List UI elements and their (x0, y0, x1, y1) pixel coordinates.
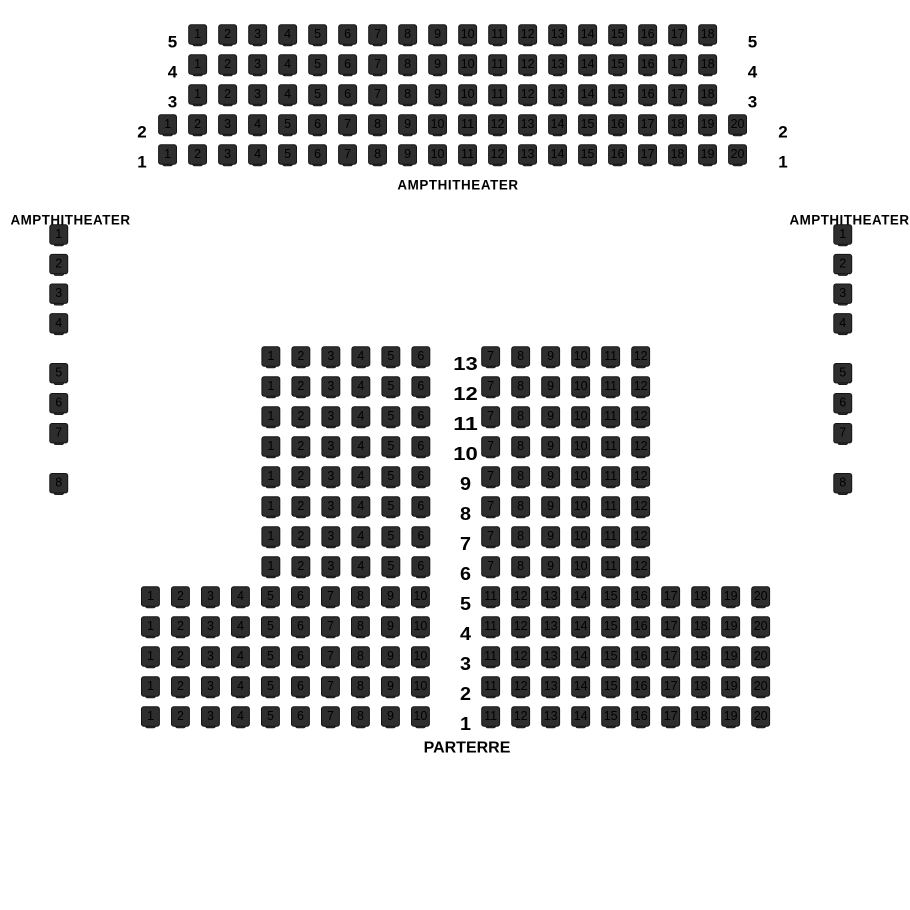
svg-text:4: 4 (237, 709, 244, 723)
svg-text:3: 3 (460, 654, 471, 674)
svg-text:4: 4 (237, 619, 244, 633)
svg-text:8: 8 (404, 57, 411, 71)
svg-text:4: 4 (839, 316, 846, 330)
svg-text:10: 10 (574, 559, 588, 573)
svg-text:19: 19 (701, 117, 715, 131)
svg-text:19: 19 (701, 147, 715, 161)
svg-text:9: 9 (387, 709, 394, 723)
svg-text:17: 17 (671, 57, 685, 71)
svg-text:2: 2 (297, 469, 304, 483)
svg-text:9: 9 (460, 474, 471, 494)
svg-text:4: 4 (284, 57, 291, 71)
svg-text:3: 3 (224, 117, 231, 131)
svg-text:5: 5 (267, 619, 274, 633)
svg-text:12: 12 (634, 529, 648, 543)
svg-text:5: 5 (314, 87, 321, 101)
svg-text:7: 7 (374, 57, 381, 71)
svg-text:8: 8 (517, 409, 524, 423)
svg-text:4: 4 (357, 439, 364, 453)
svg-text:1: 1 (267, 529, 274, 543)
svg-text:9: 9 (434, 27, 441, 41)
svg-text:6: 6 (839, 396, 846, 410)
svg-text:12: 12 (521, 27, 535, 41)
svg-text:7: 7 (374, 27, 381, 41)
svg-text:2: 2 (177, 709, 184, 723)
svg-text:4: 4 (284, 87, 291, 101)
svg-text:17: 17 (671, 27, 685, 41)
svg-text:10: 10 (574, 529, 588, 543)
svg-text:12: 12 (634, 439, 648, 453)
svg-text:1: 1 (55, 227, 62, 241)
svg-text:12: 12 (634, 379, 648, 393)
svg-text:AMPTHITHEATER: AMPTHITHEATER (10, 213, 130, 228)
svg-text:3: 3 (254, 57, 261, 71)
svg-text:6: 6 (417, 349, 424, 363)
svg-text:17: 17 (664, 679, 678, 693)
svg-text:5: 5 (387, 529, 394, 543)
svg-text:1: 1 (460, 714, 471, 734)
svg-text:1: 1 (267, 499, 274, 513)
svg-text:16: 16 (634, 589, 648, 603)
svg-text:5: 5 (168, 33, 177, 52)
svg-text:10: 10 (461, 87, 475, 101)
svg-text:9: 9 (547, 409, 554, 423)
svg-text:12: 12 (521, 57, 535, 71)
svg-text:8: 8 (357, 649, 364, 663)
svg-text:7: 7 (487, 469, 494, 483)
svg-text:13: 13 (521, 117, 535, 131)
svg-text:5: 5 (314, 27, 321, 41)
svg-text:14: 14 (574, 619, 588, 633)
svg-text:1: 1 (267, 349, 274, 363)
svg-text:8: 8 (517, 529, 524, 543)
svg-text:18: 18 (694, 589, 708, 603)
svg-text:3: 3 (748, 93, 757, 112)
svg-text:8: 8 (460, 504, 471, 524)
svg-text:18: 18 (701, 27, 715, 41)
svg-text:13: 13 (544, 679, 558, 693)
svg-text:1: 1 (194, 27, 201, 41)
svg-text:16: 16 (641, 57, 655, 71)
svg-text:14: 14 (551, 117, 565, 131)
svg-text:4: 4 (357, 349, 364, 363)
svg-text:15: 15 (604, 649, 618, 663)
svg-text:13: 13 (551, 57, 565, 71)
svg-text:13: 13 (453, 354, 478, 374)
svg-text:12: 12 (634, 559, 648, 573)
svg-text:13: 13 (544, 649, 558, 663)
svg-text:1: 1 (267, 439, 274, 453)
svg-text:11: 11 (484, 649, 497, 663)
svg-text:11: 11 (491, 27, 504, 41)
svg-text:10: 10 (413, 649, 427, 663)
svg-text:4: 4 (55, 316, 62, 330)
svg-text:7: 7 (487, 439, 494, 453)
svg-text:1: 1 (194, 87, 201, 101)
svg-text:4: 4 (254, 117, 261, 131)
svg-text:5: 5 (267, 709, 274, 723)
svg-text:3: 3 (207, 619, 214, 633)
svg-text:4: 4 (254, 147, 261, 161)
svg-text:1: 1 (267, 559, 274, 573)
svg-text:10: 10 (574, 439, 588, 453)
svg-text:3: 3 (839, 286, 846, 300)
svg-text:7: 7 (487, 529, 494, 543)
svg-text:12: 12 (521, 87, 535, 101)
svg-text:18: 18 (701, 57, 715, 71)
svg-text:12: 12 (634, 499, 648, 513)
svg-text:15: 15 (604, 679, 618, 693)
svg-text:11: 11 (604, 439, 617, 453)
svg-text:19: 19 (724, 679, 738, 693)
svg-text:10: 10 (453, 444, 478, 464)
svg-text:1: 1 (164, 117, 171, 131)
svg-text:20: 20 (754, 619, 768, 633)
svg-text:7: 7 (327, 649, 334, 663)
svg-text:11: 11 (604, 499, 617, 513)
svg-text:4: 4 (460, 624, 471, 644)
svg-text:1: 1 (147, 589, 154, 603)
svg-text:6: 6 (297, 709, 304, 723)
svg-text:15: 15 (611, 57, 625, 71)
svg-text:1: 1 (147, 619, 154, 633)
svg-text:16: 16 (634, 649, 648, 663)
svg-text:6: 6 (417, 529, 424, 543)
svg-text:12: 12 (491, 117, 505, 131)
svg-text:13: 13 (551, 87, 565, 101)
svg-text:9: 9 (547, 469, 554, 483)
svg-text:8: 8 (357, 589, 364, 603)
svg-text:8: 8 (517, 439, 524, 453)
svg-text:4: 4 (357, 499, 364, 513)
svg-text:14: 14 (581, 27, 595, 41)
svg-text:5: 5 (267, 589, 274, 603)
svg-text:5: 5 (387, 349, 394, 363)
svg-text:8: 8 (517, 349, 524, 363)
svg-text:4: 4 (237, 589, 244, 603)
svg-text:6: 6 (460, 564, 471, 584)
svg-text:1: 1 (147, 649, 154, 663)
svg-text:11: 11 (491, 57, 504, 71)
svg-text:9: 9 (434, 87, 441, 101)
svg-text:1: 1 (778, 153, 787, 172)
svg-text:8: 8 (374, 117, 381, 131)
svg-text:4: 4 (357, 559, 364, 573)
svg-text:5: 5 (387, 379, 394, 393)
svg-text:6: 6 (417, 439, 424, 453)
svg-text:11: 11 (604, 379, 617, 393)
svg-text:5: 5 (284, 147, 291, 161)
svg-text:14: 14 (574, 709, 588, 723)
svg-text:2: 2 (297, 409, 304, 423)
svg-text:17: 17 (664, 709, 678, 723)
svg-text:17: 17 (671, 87, 685, 101)
svg-text:15: 15 (604, 589, 618, 603)
svg-text:10: 10 (574, 409, 588, 423)
svg-text:10: 10 (574, 349, 588, 363)
svg-text:5: 5 (284, 117, 291, 131)
svg-text:14: 14 (574, 649, 588, 663)
svg-text:11: 11 (461, 117, 474, 131)
svg-text:9: 9 (547, 499, 554, 513)
svg-text:1: 1 (267, 379, 274, 393)
svg-text:10: 10 (413, 679, 427, 693)
svg-text:5: 5 (748, 33, 757, 52)
svg-text:2: 2 (194, 117, 201, 131)
svg-text:3: 3 (55, 286, 62, 300)
svg-text:10: 10 (574, 499, 588, 513)
svg-text:10: 10 (461, 27, 475, 41)
svg-text:18: 18 (694, 619, 708, 633)
svg-text:8: 8 (404, 27, 411, 41)
svg-text:12: 12 (514, 589, 528, 603)
svg-text:17: 17 (664, 589, 678, 603)
svg-text:8: 8 (839, 476, 846, 490)
svg-text:12: 12 (634, 349, 648, 363)
svg-text:2: 2 (460, 684, 471, 704)
svg-text:4: 4 (284, 27, 291, 41)
svg-text:10: 10 (574, 379, 588, 393)
svg-text:1: 1 (267, 409, 274, 423)
svg-text:2: 2 (224, 87, 231, 101)
svg-text:3: 3 (224, 147, 231, 161)
svg-text:5: 5 (267, 679, 274, 693)
svg-text:6: 6 (417, 559, 424, 573)
svg-text:2: 2 (297, 379, 304, 393)
svg-text:15: 15 (611, 87, 625, 101)
svg-text:5: 5 (55, 366, 62, 380)
svg-text:20: 20 (731, 147, 745, 161)
svg-text:20: 20 (731, 117, 745, 131)
svg-text:4: 4 (237, 679, 244, 693)
svg-text:19: 19 (724, 649, 738, 663)
svg-text:2: 2 (297, 349, 304, 363)
svg-text:2: 2 (778, 123, 787, 142)
svg-text:6: 6 (297, 589, 304, 603)
svg-text:6: 6 (417, 409, 424, 423)
svg-text:10: 10 (413, 709, 427, 723)
svg-text:20: 20 (754, 679, 768, 693)
svg-text:11: 11 (484, 679, 497, 693)
svg-text:8: 8 (517, 559, 524, 573)
svg-text:14: 14 (574, 589, 588, 603)
svg-text:11: 11 (484, 709, 497, 723)
svg-text:3: 3 (327, 469, 334, 483)
svg-text:18: 18 (701, 87, 715, 101)
svg-text:17: 17 (664, 619, 678, 633)
svg-text:3: 3 (327, 349, 334, 363)
svg-text:6: 6 (314, 147, 321, 161)
svg-text:16: 16 (611, 117, 625, 131)
svg-text:9: 9 (387, 679, 394, 693)
svg-text:7: 7 (344, 147, 351, 161)
svg-text:7: 7 (374, 87, 381, 101)
svg-text:12: 12 (514, 679, 528, 693)
svg-text:12: 12 (514, 619, 528, 633)
svg-text:5: 5 (267, 649, 274, 663)
svg-text:19: 19 (724, 619, 738, 633)
svg-text:2: 2 (839, 257, 846, 271)
svg-text:2: 2 (297, 439, 304, 453)
svg-text:7: 7 (55, 426, 62, 440)
svg-text:6: 6 (297, 649, 304, 663)
svg-text:6: 6 (55, 396, 62, 410)
svg-text:2: 2 (177, 589, 184, 603)
svg-text:10: 10 (431, 147, 445, 161)
svg-text:17: 17 (641, 117, 655, 131)
svg-text:12: 12 (514, 709, 528, 723)
svg-text:1: 1 (267, 469, 274, 483)
svg-text:15: 15 (581, 117, 595, 131)
svg-text:3: 3 (254, 87, 261, 101)
svg-text:16: 16 (634, 679, 648, 693)
svg-text:20: 20 (754, 589, 768, 603)
svg-text:4: 4 (357, 469, 364, 483)
svg-text:18: 18 (694, 709, 708, 723)
svg-text:5: 5 (839, 366, 846, 380)
svg-text:16: 16 (634, 619, 648, 633)
svg-text:16: 16 (634, 709, 648, 723)
svg-text:13: 13 (544, 619, 558, 633)
svg-text:4: 4 (168, 63, 178, 82)
svg-text:9: 9 (387, 649, 394, 663)
svg-text:3: 3 (327, 499, 334, 513)
svg-text:9: 9 (404, 147, 411, 161)
svg-text:11: 11 (604, 469, 617, 483)
svg-text:13: 13 (544, 709, 558, 723)
svg-text:3: 3 (327, 559, 334, 573)
svg-text:3: 3 (327, 529, 334, 543)
svg-text:2: 2 (297, 559, 304, 573)
svg-text:1: 1 (194, 57, 201, 71)
svg-text:PARTERRE: PARTERRE (424, 740, 511, 757)
svg-text:14: 14 (551, 147, 565, 161)
svg-text:3: 3 (207, 709, 214, 723)
svg-text:7: 7 (327, 709, 334, 723)
svg-text:15: 15 (604, 709, 618, 723)
svg-text:18: 18 (671, 147, 685, 161)
svg-text:9: 9 (434, 57, 441, 71)
svg-text:11: 11 (453, 414, 478, 434)
svg-text:18: 18 (671, 117, 685, 131)
svg-text:12: 12 (491, 147, 505, 161)
svg-text:15: 15 (604, 619, 618, 633)
svg-text:13: 13 (544, 589, 558, 603)
svg-text:11: 11 (604, 349, 617, 363)
svg-text:11: 11 (491, 87, 504, 101)
svg-text:5: 5 (387, 439, 394, 453)
svg-text:8: 8 (357, 679, 364, 693)
svg-text:6: 6 (314, 117, 321, 131)
svg-text:10: 10 (574, 469, 588, 483)
svg-text:7: 7 (327, 619, 334, 633)
svg-text:14: 14 (581, 57, 595, 71)
svg-text:13: 13 (521, 147, 535, 161)
svg-text:9: 9 (547, 439, 554, 453)
svg-text:1: 1 (839, 227, 846, 241)
svg-text:11: 11 (604, 409, 617, 423)
svg-text:3: 3 (327, 379, 334, 393)
svg-text:3: 3 (327, 409, 334, 423)
svg-text:6: 6 (344, 87, 351, 101)
svg-text:12: 12 (634, 469, 648, 483)
svg-text:11: 11 (461, 147, 474, 161)
svg-text:5: 5 (387, 559, 394, 573)
svg-text:2: 2 (177, 619, 184, 633)
svg-text:3: 3 (207, 679, 214, 693)
svg-text:2: 2 (177, 649, 184, 663)
svg-text:2: 2 (224, 27, 231, 41)
svg-text:17: 17 (641, 147, 655, 161)
svg-text:2: 2 (55, 257, 62, 271)
svg-text:5: 5 (460, 594, 471, 614)
svg-text:13: 13 (551, 27, 565, 41)
svg-text:7: 7 (839, 426, 846, 440)
svg-text:20: 20 (754, 649, 768, 663)
svg-text:3: 3 (207, 589, 214, 603)
svg-text:11: 11 (604, 529, 617, 543)
svg-text:6: 6 (344, 57, 351, 71)
svg-text:7: 7 (487, 499, 494, 513)
svg-text:7: 7 (460, 534, 471, 554)
svg-text:7: 7 (487, 409, 494, 423)
svg-text:3: 3 (207, 649, 214, 663)
svg-text:19: 19 (724, 709, 738, 723)
svg-text:4: 4 (357, 379, 364, 393)
svg-text:AMPTHITHEATER: AMPTHITHEATER (397, 178, 518, 193)
svg-text:15: 15 (611, 27, 625, 41)
svg-text:2: 2 (297, 499, 304, 513)
svg-text:9: 9 (547, 559, 554, 573)
svg-text:12: 12 (634, 409, 648, 423)
svg-text:1: 1 (164, 147, 171, 161)
svg-text:1: 1 (137, 153, 146, 172)
svg-text:8: 8 (404, 87, 411, 101)
svg-text:16: 16 (641, 87, 655, 101)
svg-text:20: 20 (754, 709, 768, 723)
svg-text:11: 11 (604, 559, 617, 573)
svg-text:9: 9 (547, 379, 554, 393)
svg-text:6: 6 (297, 619, 304, 633)
svg-text:5: 5 (387, 499, 394, 513)
svg-text:4: 4 (237, 649, 244, 663)
svg-text:9: 9 (387, 589, 394, 603)
svg-text:14: 14 (581, 87, 595, 101)
svg-text:5: 5 (314, 57, 321, 71)
svg-text:2: 2 (224, 57, 231, 71)
svg-text:5: 5 (387, 409, 394, 423)
svg-text:3: 3 (254, 27, 261, 41)
svg-text:6: 6 (417, 499, 424, 513)
svg-text:6: 6 (417, 379, 424, 393)
svg-text:7: 7 (487, 349, 494, 363)
svg-text:3: 3 (327, 439, 334, 453)
svg-text:18: 18 (694, 649, 708, 663)
svg-text:17: 17 (664, 649, 678, 663)
svg-text:7: 7 (487, 379, 494, 393)
svg-text:9: 9 (547, 349, 554, 363)
svg-text:6: 6 (417, 469, 424, 483)
svg-text:18: 18 (694, 679, 708, 693)
svg-text:10: 10 (461, 57, 475, 71)
svg-text:11: 11 (484, 619, 497, 633)
svg-text:10: 10 (413, 589, 427, 603)
svg-text:8: 8 (55, 476, 62, 490)
svg-text:6: 6 (297, 679, 304, 693)
svg-text:1: 1 (147, 679, 154, 693)
svg-text:19: 19 (724, 589, 738, 603)
svg-text:8: 8 (374, 147, 381, 161)
